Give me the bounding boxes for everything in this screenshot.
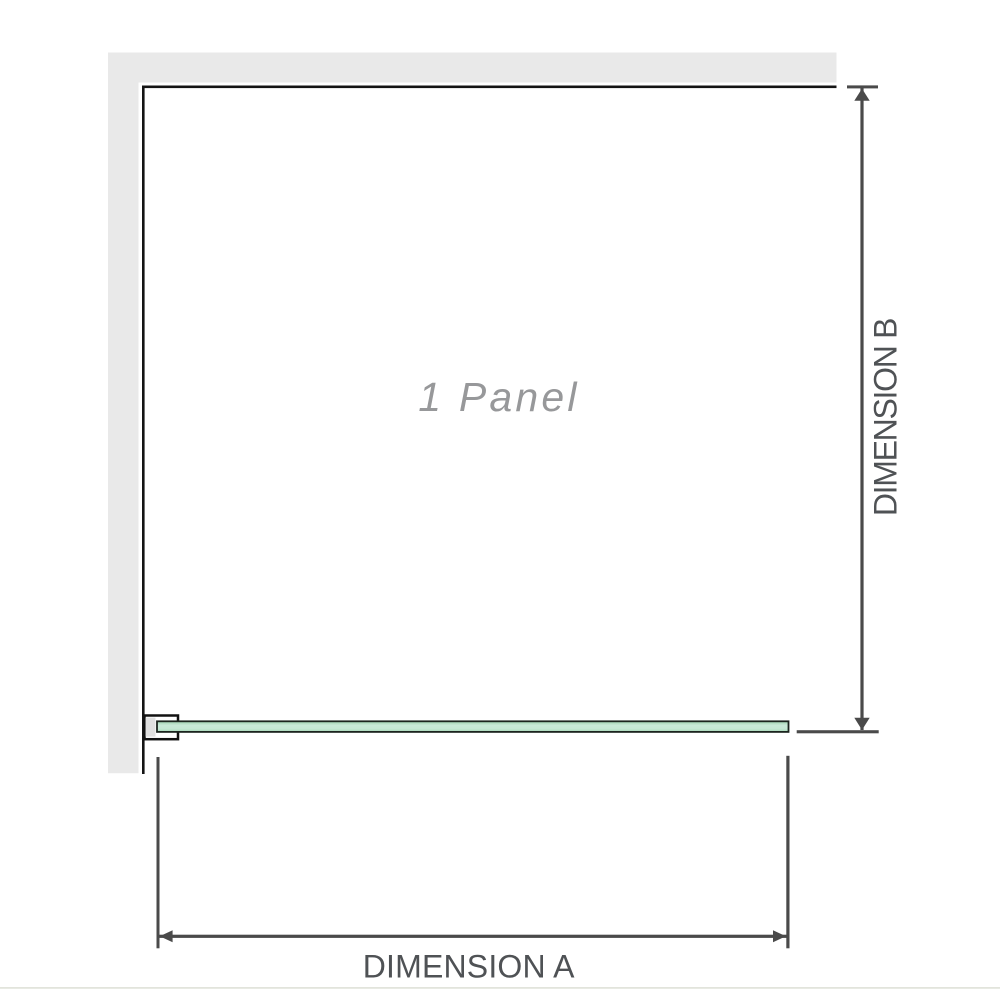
svg-text:1 Panel: 1 Panel: [418, 374, 579, 420]
svg-text:DIMENSION A: DIMENSION A: [363, 948, 575, 984]
svg-text:DIMENSION B: DIMENSION B: [868, 319, 904, 516]
